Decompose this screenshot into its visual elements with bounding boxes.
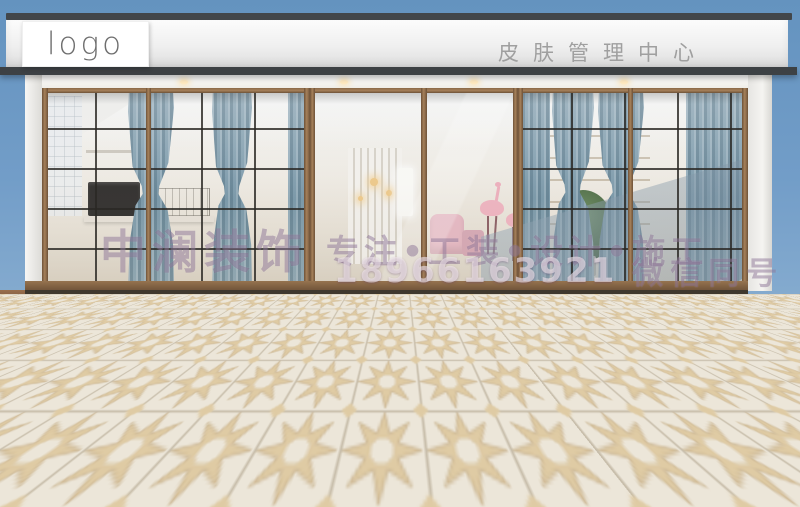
- soffit-downlight: [470, 80, 478, 84]
- soffit-band: [42, 75, 748, 88]
- frame-vertical: [42, 88, 48, 290]
- logo-sign: logo: [22, 21, 149, 67]
- soffit-downlight: [340, 80, 348, 84]
- canopy-edge: [0, 67, 797, 75]
- watermark-line2: 18966163921 微信同号: [334, 248, 784, 293]
- store-name-sign: 皮肤管理中心: [498, 37, 778, 67]
- logo-text: logo: [47, 26, 124, 62]
- roof-trim: [6, 13, 792, 20]
- watermark-wechat-note: 微信同号: [632, 248, 784, 293]
- watermark-phone: 18966163921: [334, 251, 616, 291]
- soffit-downlight: [180, 80, 188, 84]
- storefront-render: logo 皮肤管理中心 中澜装饰 专注•工装•设计•施工 18966163921…: [0, 0, 800, 507]
- left-wall: [25, 75, 42, 291]
- watermark-company: 中澜装饰: [100, 216, 308, 282]
- soffit-downlight: [620, 80, 628, 84]
